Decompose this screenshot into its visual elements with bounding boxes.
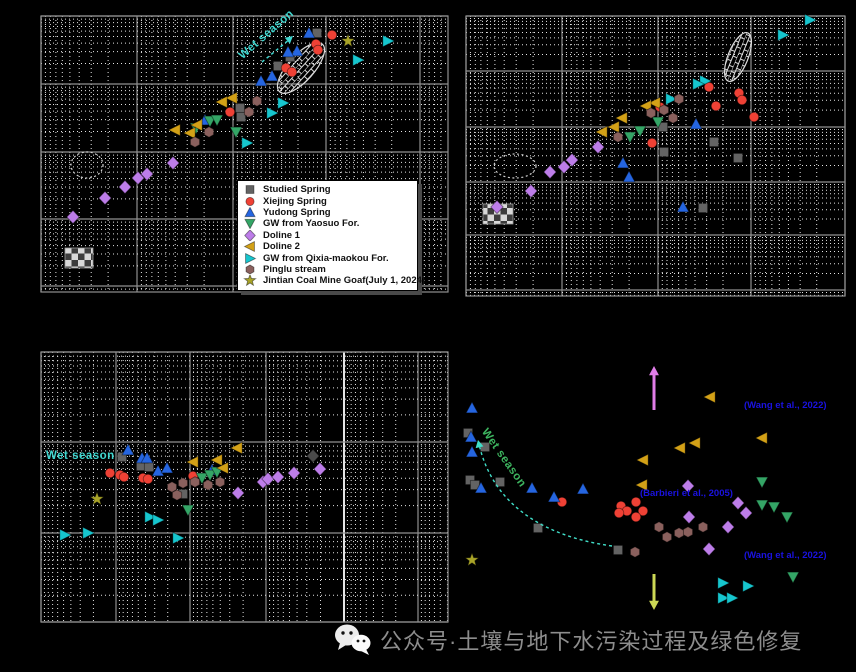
legend-item-label: Studied Spring	[263, 184, 331, 195]
legend-item-label: Pinglu stream	[263, 264, 326, 275]
marker-triangle-right	[278, 97, 290, 109]
legend-marker-square	[242, 184, 258, 195]
marker-triangle-up	[282, 46, 294, 57]
scatter-figure-svg	[0, 0, 856, 672]
marker-triangle-up	[690, 118, 702, 129]
wet-season-label-bottom-left: Wet season	[46, 451, 115, 463]
marker-triangle-right	[778, 29, 790, 41]
marker-triangle-down	[756, 477, 768, 488]
figure-stage: Wet season Wet season Wet season (Wang e…	[0, 0, 856, 672]
marker-star	[90, 492, 103, 505]
marker-circle	[105, 468, 115, 478]
marker-triangle-right	[383, 35, 395, 47]
marker-triangle-right	[718, 577, 730, 589]
legend-item: Doline 1	[242, 230, 413, 241]
marker-triangle-right	[83, 527, 95, 539]
marker-triangle-up	[623, 171, 635, 182]
marker-circle	[614, 508, 624, 518]
legend-marker-triangle-up	[242, 207, 258, 218]
marker-hexagon	[646, 108, 655, 119]
marker-triangle-up	[255, 75, 267, 86]
marker-triangle-down	[768, 502, 780, 513]
arrow-head	[649, 366, 659, 375]
marker-circle	[246, 197, 254, 205]
marker-diamond	[307, 449, 319, 462]
marker-hexagon	[668, 113, 677, 124]
marker-hexagon	[613, 132, 622, 143]
marker-circle	[313, 45, 323, 55]
legend-marker-diamond	[242, 230, 258, 241]
series-jintian-coal-mine-goaf-july-1-2024-	[90, 492, 103, 505]
marker-triangle-left	[216, 96, 228, 108]
marker-hexagon	[178, 478, 187, 489]
marker-triangle-up	[577, 483, 589, 494]
marker-circle	[287, 67, 297, 77]
legend-marker-hexagon	[242, 264, 258, 275]
series-doline-1	[232, 462, 326, 499]
marker-diamond	[232, 486, 244, 499]
plot-frame	[41, 352, 448, 622]
series-gw-from-qixia-maokou-for-	[718, 577, 755, 604]
legend-item: Pinglu stream	[242, 264, 413, 275]
legend-item: Studied Spring	[242, 184, 413, 195]
series-yudong-spring	[122, 444, 218, 476]
legend-marker-triangle-down	[242, 218, 258, 229]
marker-triangle-down	[182, 505, 194, 516]
marker-square	[709, 137, 718, 146]
marker-triangle-left	[674, 442, 686, 454]
marker-triangle-up	[617, 157, 629, 168]
legend-item: Doline 2	[242, 241, 413, 252]
marker-diamond	[732, 496, 744, 509]
marker-triangle-up	[122, 444, 134, 455]
legend-item: GW from Qixia-maokou For.	[242, 252, 413, 263]
legend-marker-triangle-right	[242, 253, 258, 264]
marker-circle	[647, 138, 657, 148]
marker-triangle-left	[596, 126, 608, 138]
marker-diamond	[722, 520, 734, 533]
marker-triangle-up	[526, 482, 538, 493]
marker-triangle-left	[608, 121, 620, 133]
marker-hexagon	[204, 127, 213, 138]
marker-triangle-right	[242, 137, 254, 149]
marker-diamond	[119, 180, 131, 193]
marker-hexagon	[190, 477, 199, 488]
marker-diamond	[245, 230, 256, 241]
legend-marker-circle	[242, 196, 258, 207]
marker-circle	[119, 472, 129, 482]
marker-hexagon	[698, 522, 707, 533]
citation-wang-2022-bottom: (Wang et al., 2022)	[744, 551, 827, 561]
marker-triangle-down	[230, 127, 242, 138]
marker-diamond	[703, 542, 715, 555]
series-pinglu-stream	[167, 477, 224, 501]
marker-circle	[737, 95, 747, 105]
marker-triangle-down	[756, 500, 768, 511]
legend-item-label: GW from Qixia-maokou For.	[263, 253, 389, 264]
marker-triangle-up	[161, 462, 173, 473]
legend-item-label: Doline 1	[263, 230, 300, 241]
series-gw-from-qixia-maokou-for-	[60, 511, 185, 544]
marker-square	[733, 153, 742, 162]
legend-item-label: Xiejing Spring	[263, 196, 327, 207]
legend-item-label: Doline 2	[263, 241, 300, 252]
marker-square	[613, 545, 622, 554]
marker-star	[244, 275, 255, 285]
arrow-head	[649, 601, 659, 610]
marker-diamond	[740, 506, 752, 519]
plot-legend: Studied SpringXiejing SpringYudong Sprin…	[237, 180, 418, 291]
marker-hexagon	[246, 265, 254, 274]
marker-triangle-right	[173, 532, 185, 544]
legend-item: Jintian Coal Mine Goaf(July 1, 2024)	[242, 275, 413, 286]
grid-bottom-left	[41, 352, 448, 622]
series-doline-1	[67, 156, 179, 223]
marker-triangle-right	[153, 514, 165, 526]
marker-hexagon	[674, 94, 683, 105]
checkerboard-region	[65, 248, 93, 268]
marker-circle	[711, 101, 721, 111]
marker-square	[698, 203, 707, 212]
series-pinglu-stream	[630, 522, 707, 558]
marker-triangle-down	[634, 126, 646, 137]
panel-top-right	[466, 14, 845, 296]
marker-circle	[327, 30, 337, 40]
marker-triangle-left	[704, 391, 716, 403]
dotted-ellipse-region	[71, 152, 103, 178]
legend-marker-triangle-left	[242, 241, 258, 252]
marker-circle	[749, 112, 759, 122]
marker-triangle-right	[60, 529, 72, 541]
series-gw-from-yaosuo-for-	[756, 477, 799, 583]
marker-triangle-left	[169, 124, 181, 136]
marker-triangle-up	[548, 491, 560, 502]
marker-square	[144, 462, 153, 471]
wechat-icon	[333, 622, 373, 658]
series-studied-spring	[658, 122, 742, 212]
marker-triangle-up	[466, 402, 478, 413]
marker-triangle-down	[245, 220, 255, 229]
marker-hexagon	[172, 490, 181, 501]
marker-triangle-right	[353, 54, 365, 66]
legend-item-label: Yudong Spring	[263, 207, 331, 218]
marker-triangle-down	[781, 512, 793, 523]
legend-marker-star	[242, 275, 258, 286]
series-doline-1	[491, 140, 604, 213]
panel-bottom-left	[41, 352, 448, 622]
marker-diamond	[683, 510, 695, 523]
marker-hexagon	[674, 528, 683, 539]
watermark: 公众号·土壤与地下水污染过程及绿色修复	[333, 622, 802, 658]
marker-hexagon	[244, 107, 253, 118]
marker-triangle-right	[246, 253, 256, 263]
marker-triangle-left	[756, 432, 768, 444]
marker-triangle-down	[624, 132, 636, 143]
marker-hexagon	[630, 547, 639, 558]
marker-triangle-right	[727, 592, 739, 604]
marker-circle	[143, 474, 153, 484]
marker-diamond	[99, 191, 111, 204]
marker-triangle-left	[637, 454, 649, 466]
citation-wang-2022-top: (Wang et al., 2022)	[744, 401, 827, 411]
marker-hexagon	[659, 105, 668, 116]
marker-diamond	[544, 165, 556, 178]
marker-triangle-left	[689, 437, 701, 449]
legend-item-label: GW from Yaosuo For.	[263, 218, 359, 229]
marker-triangle-left	[187, 456, 199, 468]
marker-hexagon	[190, 137, 199, 148]
marker-triangle-up	[245, 207, 255, 216]
series-jintian-coal-mine-goaf-july-1-2024-	[465, 553, 478, 566]
marker-square	[235, 103, 244, 112]
series-unlabeled	[307, 449, 319, 462]
marker-triangle-right	[267, 107, 279, 119]
marker-square	[246, 186, 254, 194]
marker-triangle-up	[266, 70, 278, 81]
marker-hexagon	[252, 96, 261, 107]
marker-circle	[225, 107, 235, 117]
watermark-text: 公众号·土壤与地下水污染过程及绿色修复	[380, 624, 802, 656]
dotted-ellipse-region	[494, 154, 536, 178]
marker-diamond	[314, 462, 326, 475]
marker-triangle-right	[743, 580, 755, 592]
series-jintian-coal-mine-goaf-july-1-2024-	[341, 34, 354, 47]
marker-diamond	[592, 140, 604, 153]
marker-square	[659, 147, 668, 156]
marker-star	[341, 34, 354, 47]
marker-triangle-left	[231, 442, 243, 454]
marker-hexagon	[203, 480, 212, 491]
marker-triangle-down	[787, 572, 799, 583]
marker-circle	[631, 512, 641, 522]
legend-item: GW from Yaosuo For.	[242, 218, 413, 229]
marker-hexagon	[654, 522, 663, 533]
marker-hexagon	[683, 527, 692, 538]
series-xiejing-spring	[557, 497, 648, 522]
citation-barbieri-2005: (Barbieri et al., 2005)	[640, 489, 733, 499]
marker-diamond	[525, 184, 537, 197]
grid-top-right	[466, 16, 845, 296]
marker-hexagon	[215, 477, 224, 488]
legend-item-label: Jintian Coal Mine Goaf(July 1, 2024)	[263, 275, 425, 286]
legend-item: Yudong Spring	[242, 207, 413, 218]
marker-triangle-left	[245, 242, 255, 252]
legend-item: Xiejing Spring	[242, 195, 413, 206]
marker-star	[465, 553, 478, 566]
marker-hexagon	[662, 532, 671, 543]
